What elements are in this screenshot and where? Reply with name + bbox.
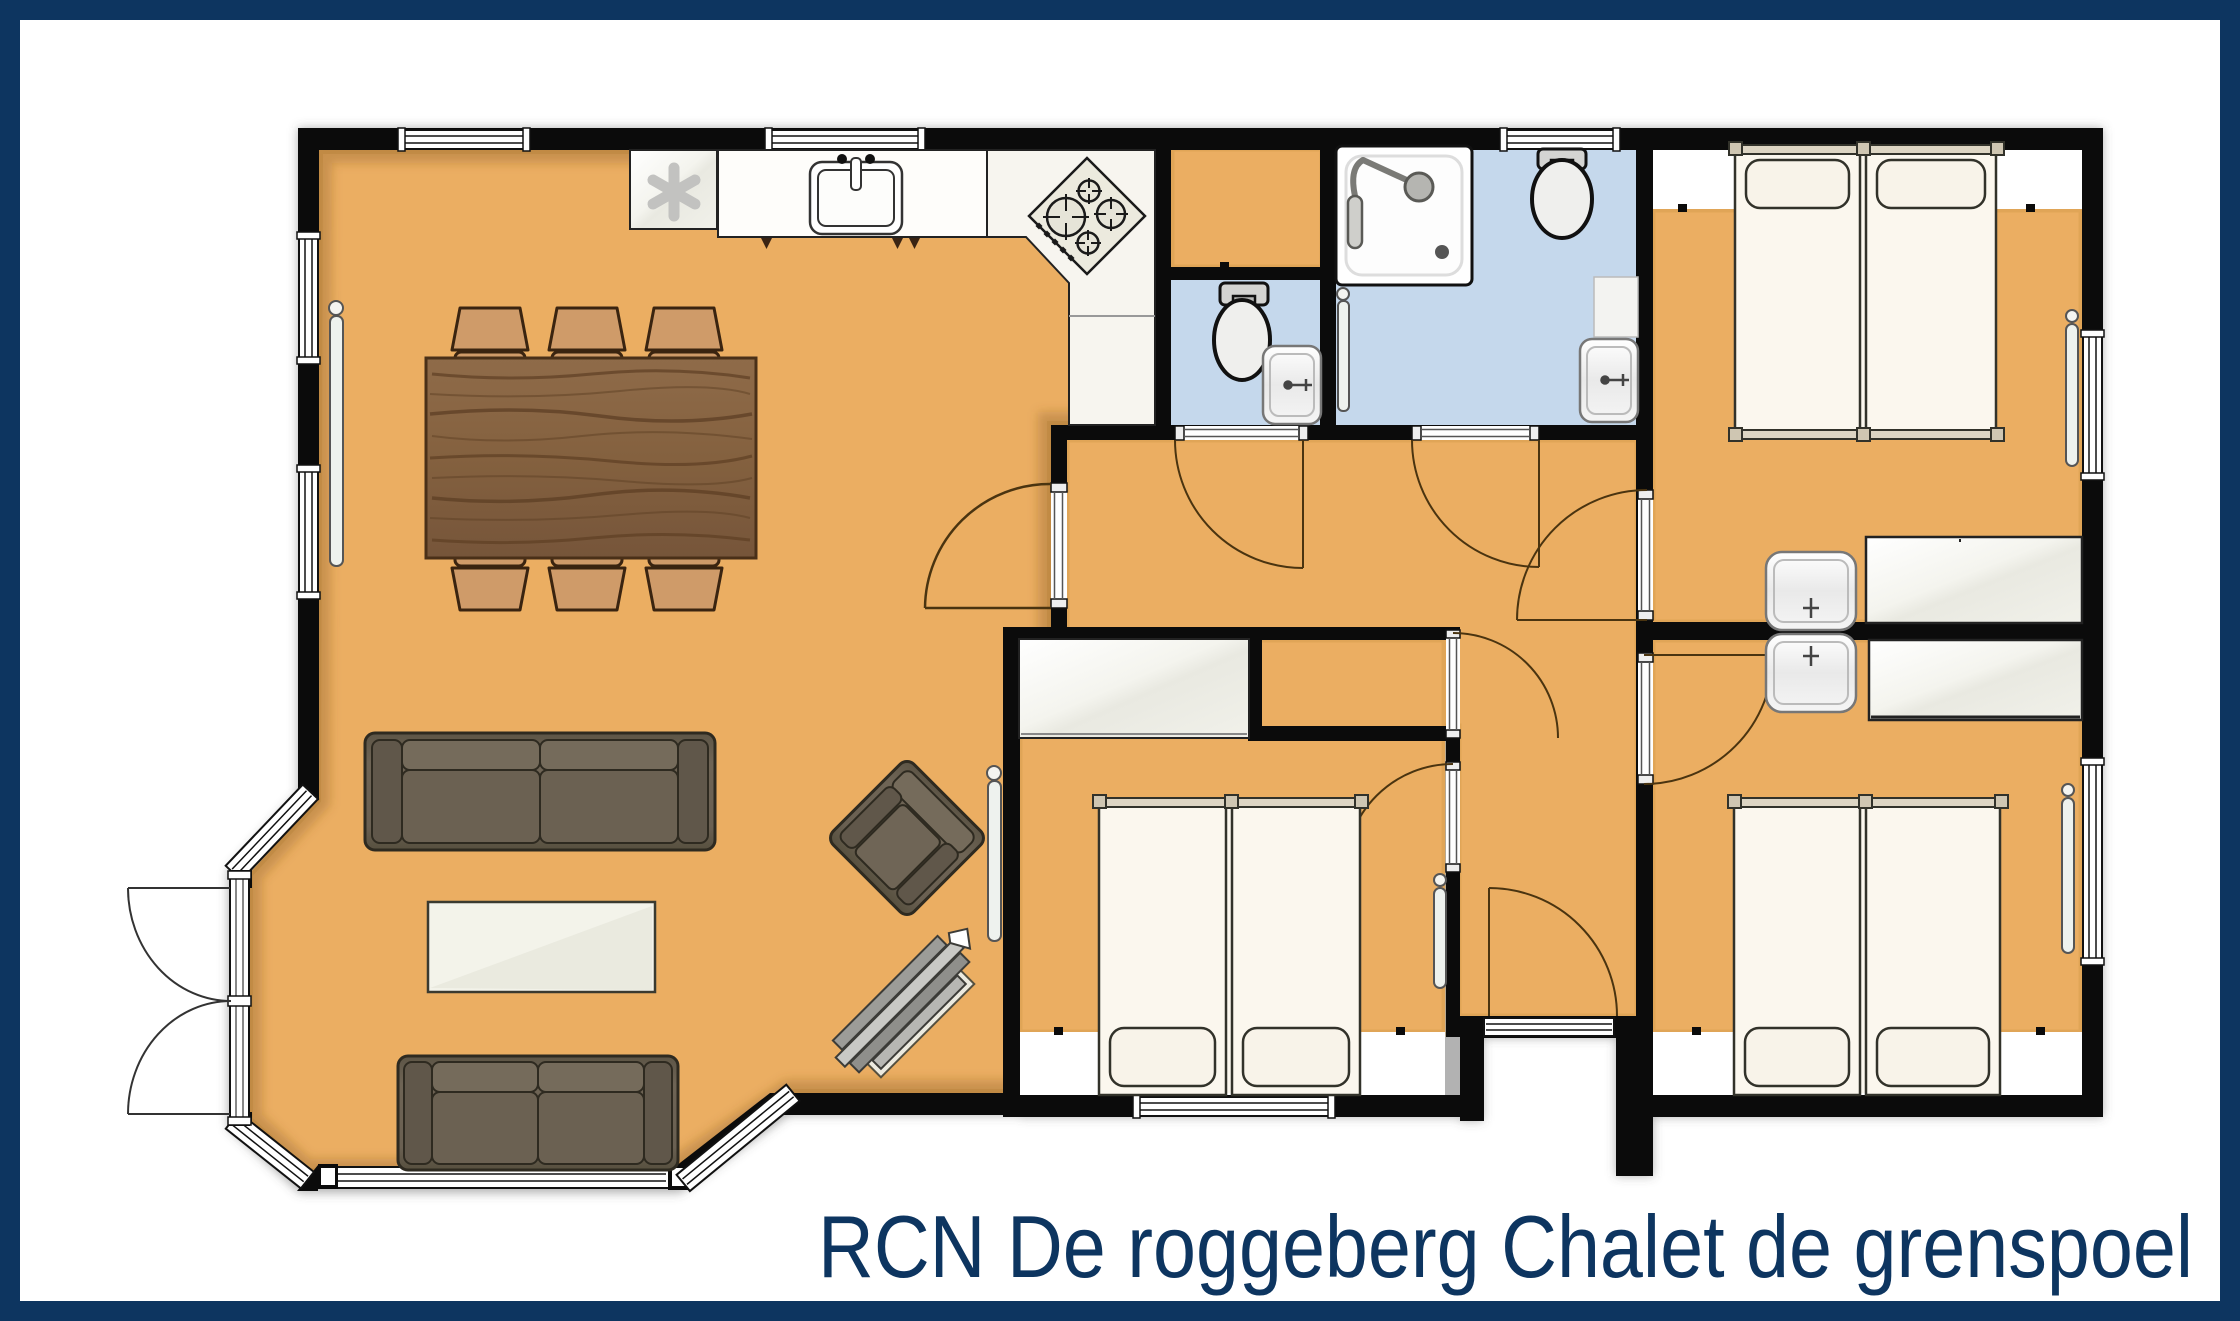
svg-text:RCN De roggeberg Chalet de gre: RCN De roggeberg Chalet de grenspoel — [818, 1197, 2193, 1296]
